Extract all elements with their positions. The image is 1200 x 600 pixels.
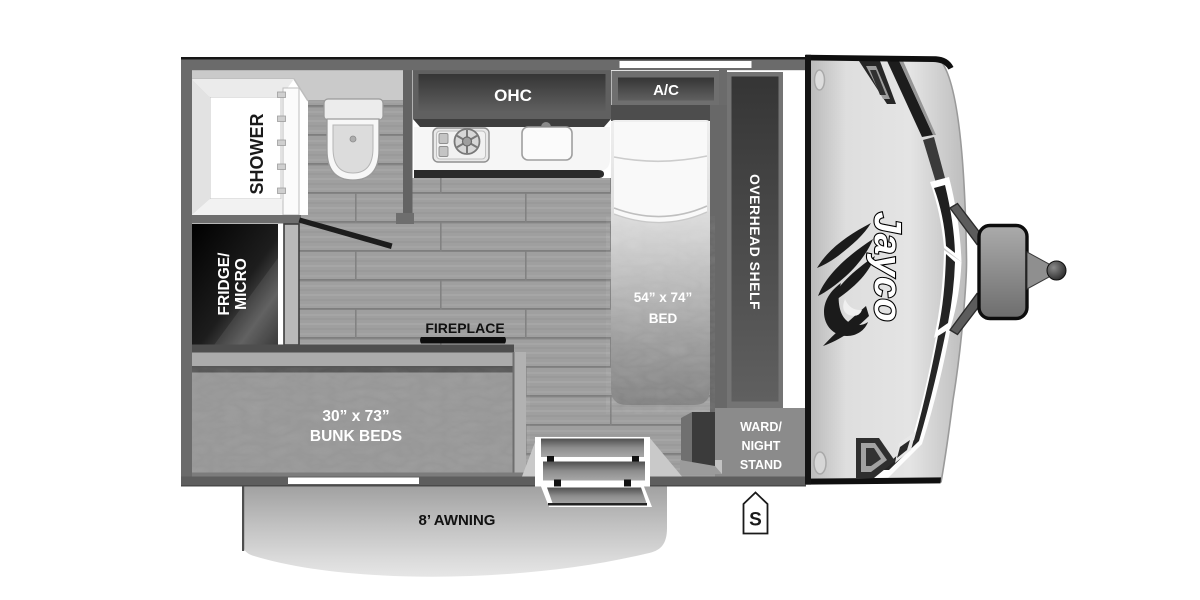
svg-text:BUNK BEDS: BUNK BEDS [310,428,402,445]
svg-text:MICRO: MICRO [233,258,250,310]
svg-text:FRIDGE/: FRIDGE/ [216,252,233,316]
svg-text:Jayco: Jayco [866,212,908,322]
svg-text:S: S [749,510,762,531]
svg-text:8’ AWNING: 8’ AWNING [419,512,496,529]
svg-text:A/C: A/C [653,82,679,99]
svg-text:30” x 73”: 30” x 73” [322,408,389,425]
svg-text:BED: BED [649,311,678,326]
svg-text:SHOWER: SHOWER [247,113,267,194]
svg-text:WARD/: WARD/ [740,420,782,434]
svg-text:54” x 74”: 54” x 74” [634,290,693,305]
svg-text:OVERHEAD SHELF: OVERHEAD SHELF [747,174,763,310]
svg-text:STAND: STAND [740,458,782,472]
svg-text:FIREPLACE: FIREPLACE [425,320,504,336]
svg-text:OHC: OHC [494,86,532,105]
svg-text:NIGHT: NIGHT [742,439,781,453]
